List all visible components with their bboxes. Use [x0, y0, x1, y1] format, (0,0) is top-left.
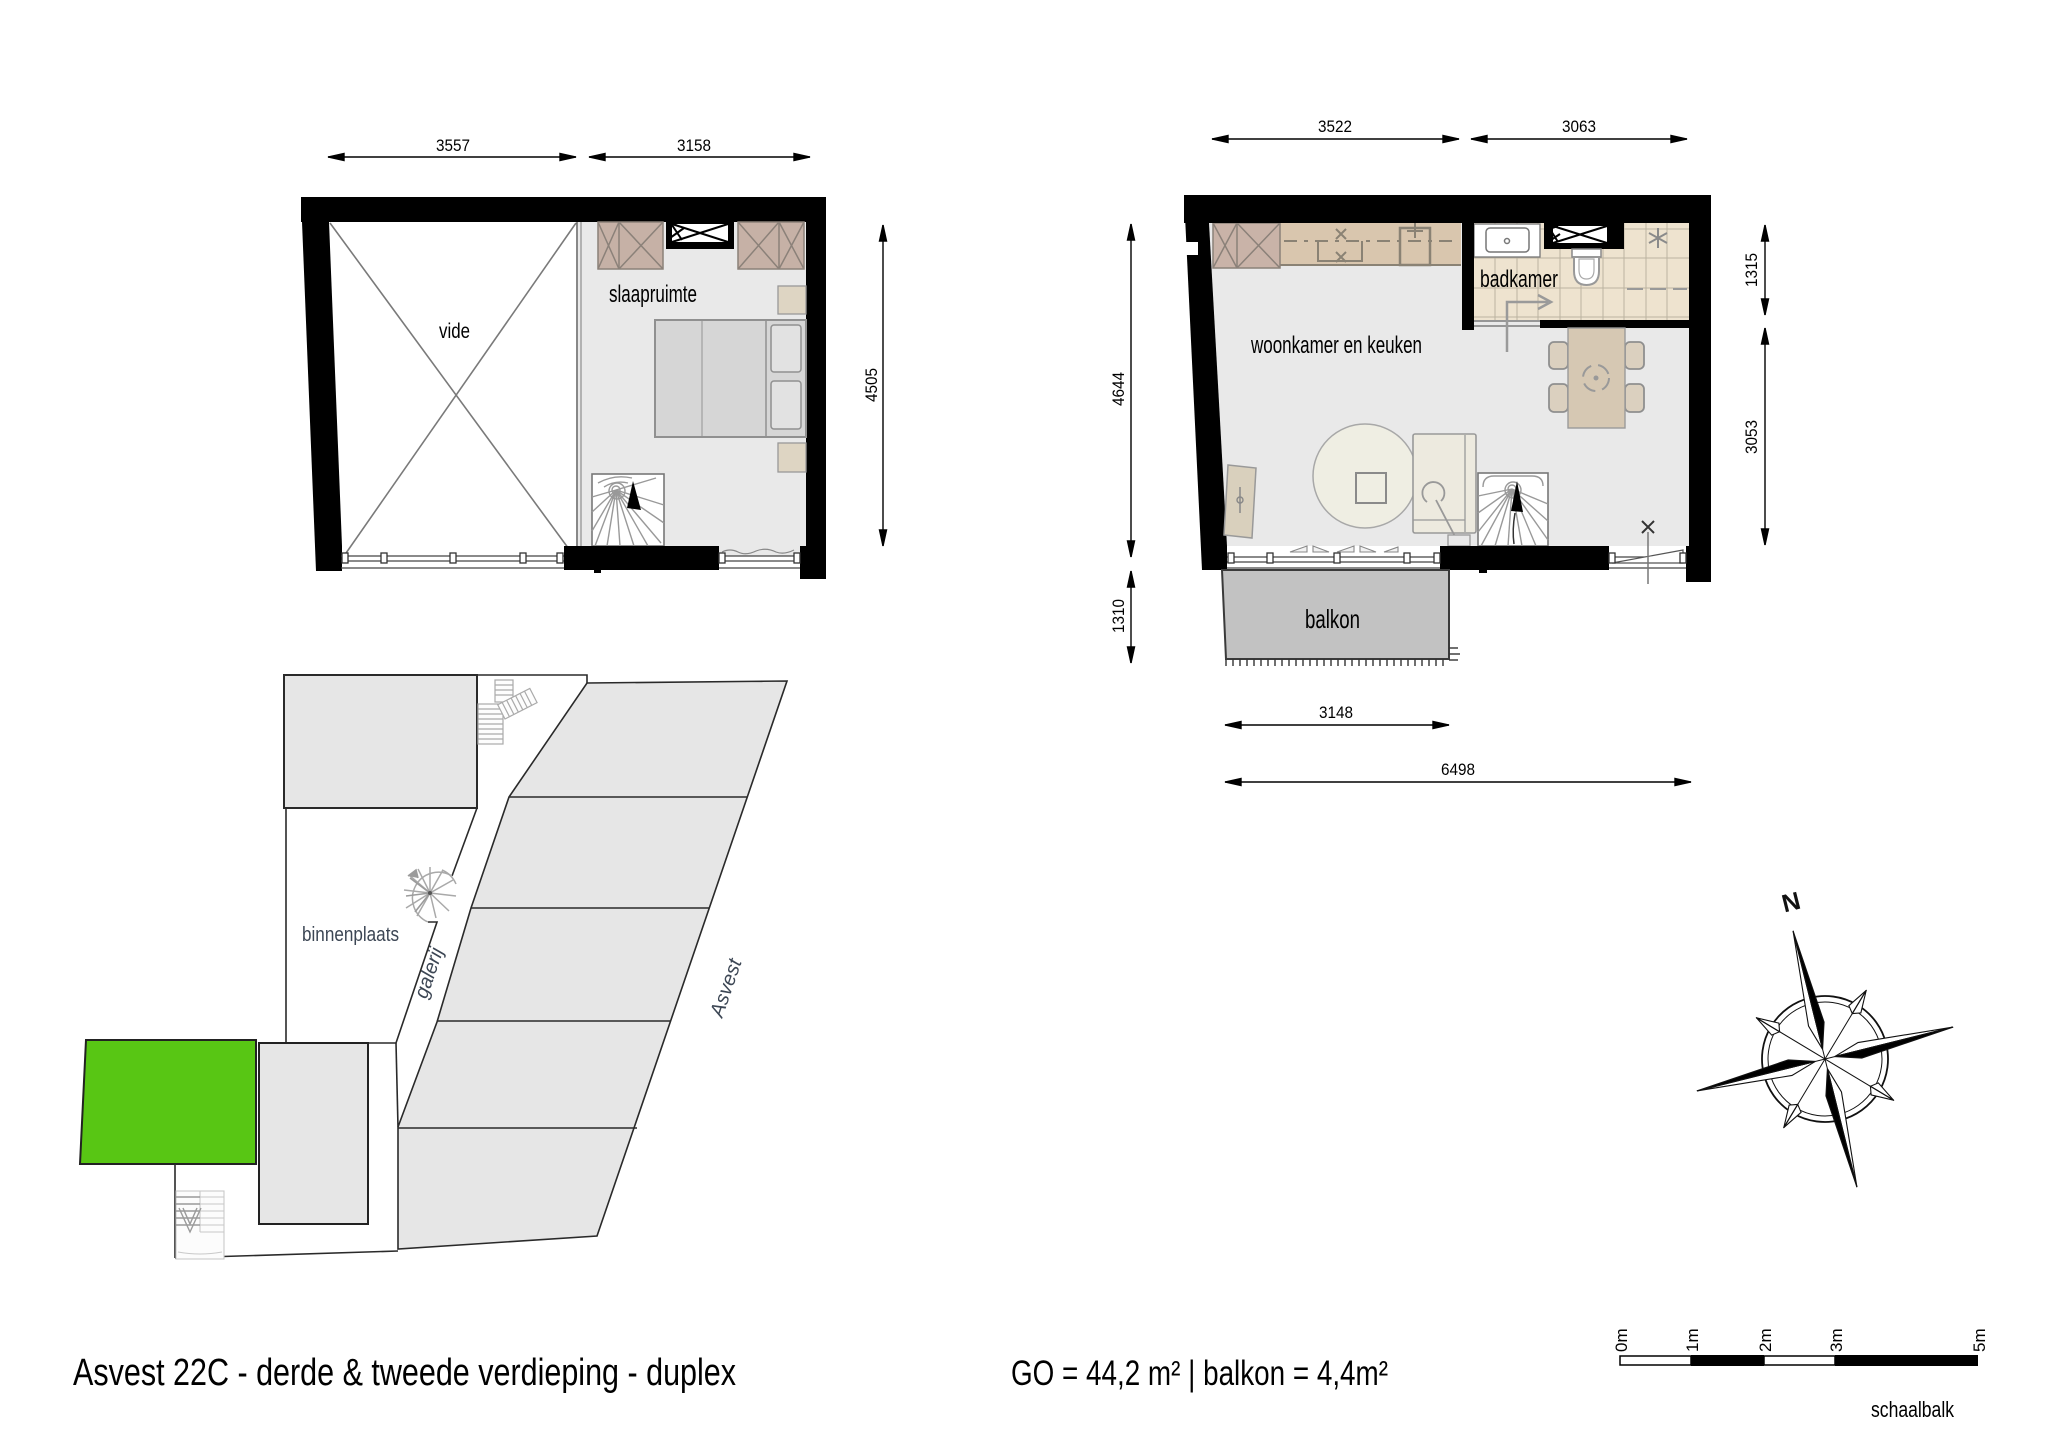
- svg-text:3053: 3053: [1742, 420, 1761, 454]
- svg-text:schaalbalk: schaalbalk: [1871, 1397, 1955, 1422]
- svg-text:1315: 1315: [1742, 253, 1761, 287]
- svg-text:3063: 3063: [1562, 117, 1596, 136]
- svg-text:binnenplaats: binnenplaats: [302, 924, 399, 946]
- svg-text:slaapruimte: slaapruimte: [609, 281, 697, 308]
- svg-text:6498: 6498: [1441, 760, 1475, 779]
- svg-text:1310: 1310: [1109, 599, 1128, 633]
- svg-text:3557: 3557: [436, 136, 470, 155]
- svg-text:woonkamer en keuken: woonkamer en keuken: [1250, 332, 1422, 359]
- svg-text:4505: 4505: [862, 368, 881, 402]
- svg-text:4644: 4644: [1109, 372, 1128, 406]
- svg-text:0m: 0m: [1612, 1328, 1631, 1352]
- svg-text:5m: 5m: [1970, 1328, 1989, 1352]
- svg-text:3522: 3522: [1318, 117, 1352, 136]
- svg-text:2m: 2m: [1756, 1328, 1775, 1352]
- svg-text:Asvest 22C - derde & tweede ve: Asvest 22C - derde & tweede verdieping -…: [73, 1352, 736, 1394]
- svg-text:GO = 44,2 m² | balkon = 4,4m²: GO = 44,2 m² | balkon = 4,4m²: [1011, 1354, 1388, 1393]
- svg-text:3148: 3148: [1319, 703, 1353, 722]
- svg-text:3m: 3m: [1827, 1328, 1846, 1352]
- svg-text:balkon: balkon: [1305, 604, 1360, 634]
- svg-text:badkamer: badkamer: [1480, 266, 1558, 293]
- svg-text:3158: 3158: [677, 136, 711, 155]
- svg-text:vide: vide: [439, 320, 470, 343]
- svg-text:1m: 1m: [1683, 1328, 1702, 1352]
